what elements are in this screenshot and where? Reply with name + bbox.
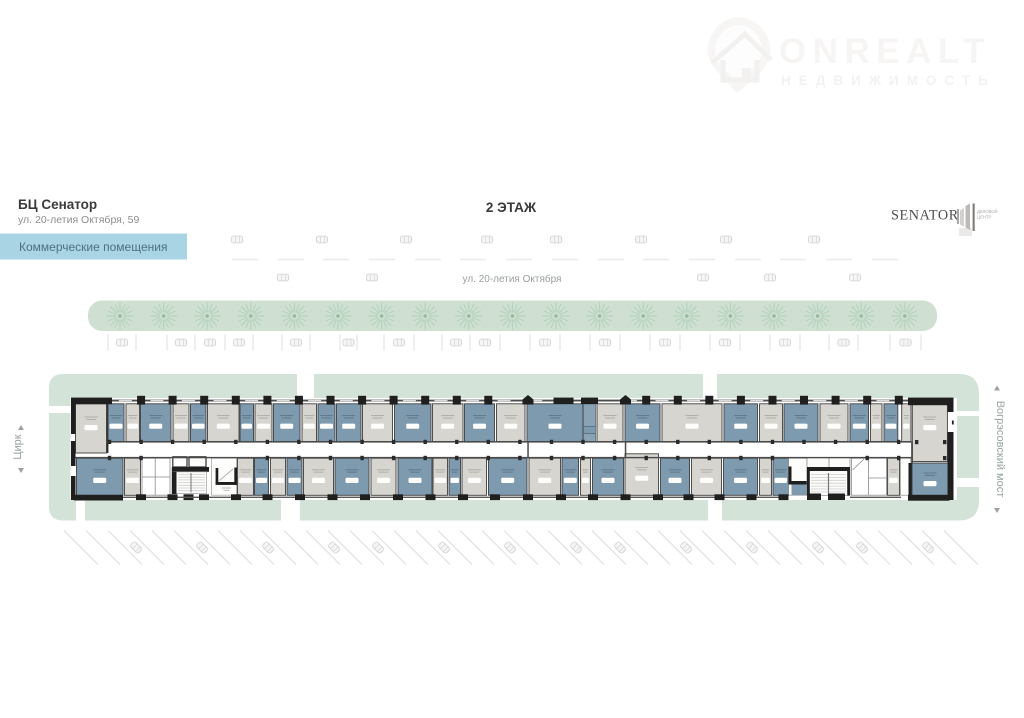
svg-text:Коммерческие помещения: Коммерческие помещения [19,240,167,254]
svg-text:ЦЕНТР: ЦЕНТР [977,215,991,220]
svg-text:Вогрэсовский мост: Вогрэсовский мост [994,401,1006,498]
svg-text:ONREALT: ONREALT [779,32,991,71]
svg-text:Цирк: Цирк [12,434,24,459]
svg-text:ул. 20-летия Октября: ул. 20-летия Октября [463,273,562,285]
svg-text:НЕДВИЖИМОСТЬ: НЕДВИЖИМОСТЬ [781,73,996,88]
svg-text:БЦ Сенатор: БЦ Сенатор [18,197,97,212]
svg-text:ДЕЛОВОЙ: ДЕЛОВОЙ [977,209,998,214]
svg-text:SENATOR: SENATOR [891,208,959,224]
svg-text:ул. 20-летия Октября, 59: ул. 20-летия Октября, 59 [18,214,140,226]
svg-text:2 ЭТАЖ: 2 ЭТАЖ [486,200,537,215]
